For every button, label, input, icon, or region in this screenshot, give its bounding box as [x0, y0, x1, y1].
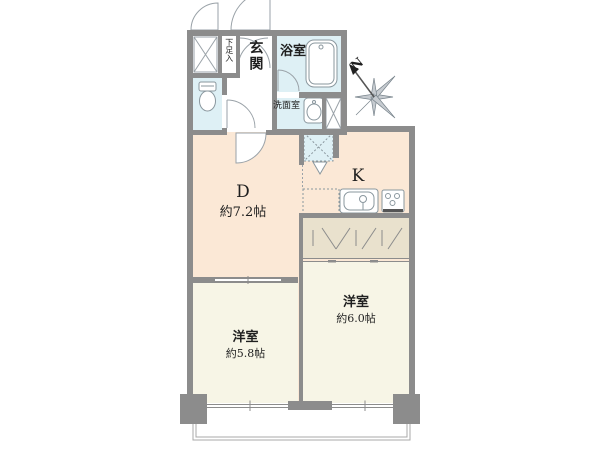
wash-basin-icon [304, 98, 324, 123]
pipe-space-icon [326, 98, 341, 129]
western-room-right-size-label: 約6.0帖 [303, 313, 409, 325]
dining-label: D [193, 183, 293, 202]
gas-stove-icon [382, 190, 404, 212]
floor-plan-drawing [0, 0, 600, 450]
entrance-door-swing [231, 0, 270, 30]
toilet-door-swing [227, 100, 255, 128]
pillar-left [180, 394, 207, 424]
washing-machine-space-icon [304, 133, 333, 161]
dining-size-label: 約7.2帖 [193, 206, 293, 220]
storage-door-swing [191, 3, 218, 30]
shoe-storage-label: 下足入 [224, 38, 233, 62]
western-room-left-size-label: 約5.8帖 [193, 348, 298, 360]
kitchen-sink-icon [340, 189, 378, 213]
western-room-left-label: 洋室 [193, 331, 298, 345]
entrance-label: 玄関 [247, 40, 262, 72]
balcony-rail [193, 410, 410, 440]
bathroom-label: 浴室 [280, 45, 306, 59]
western-room-right-label: 洋室 [303, 296, 409, 310]
storage-box-icon [194, 37, 217, 72]
kitchen-label: K [338, 167, 378, 186]
pillar-right [393, 394, 420, 424]
floor-plan: 玄関 浴室 洗面室 下足入 D 約7.2帖 K 洋室 約6.0帖 洋室 約5.8… [0, 0, 600, 450]
toilet-icon [199, 82, 216, 111]
washroom-label: 洗面室 [273, 102, 300, 112]
bathtub-icon [306, 40, 337, 87]
western-room-right-floor [303, 262, 409, 403]
